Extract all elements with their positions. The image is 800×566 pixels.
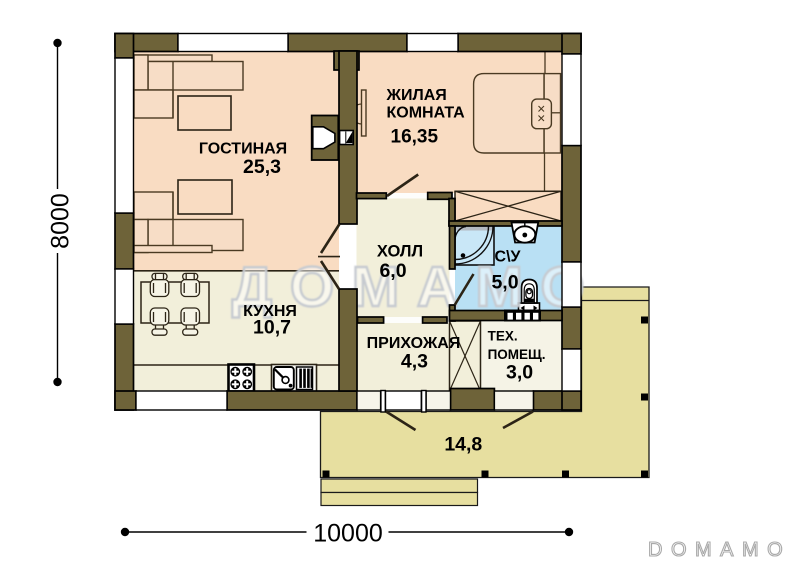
svg-text:ТЕХ.: ТЕХ. <box>488 328 518 343</box>
svg-text:ХОЛЛ: ХОЛЛ <box>377 243 423 261</box>
svg-text:С\У: С\У <box>495 249 522 266</box>
svg-text:ГОСТИНАЯ: ГОСТИНАЯ <box>199 141 287 158</box>
svg-text:14,8: 14,8 <box>444 434 482 456</box>
svg-text:25,3: 25,3 <box>243 156 281 178</box>
svg-text:DOMAMO: DOMAMO <box>648 539 791 561</box>
svg-text:6,0: 6,0 <box>379 260 406 282</box>
svg-text:16,35: 16,35 <box>391 127 439 148</box>
svg-text:10,7: 10,7 <box>253 317 291 339</box>
svg-text:4,3: 4,3 <box>401 351 428 373</box>
svg-text:10000: 10000 <box>313 520 383 548</box>
svg-text:3,0: 3,0 <box>506 362 533 384</box>
svg-text:5,0: 5,0 <box>491 272 518 294</box>
svg-text:КОМНАТА: КОМНАТА <box>387 105 466 122</box>
svg-text:ПРИХОЖАЯ: ПРИХОЖАЯ <box>367 335 461 352</box>
svg-text:ЖИЛАЯ: ЖИЛАЯ <box>386 87 447 104</box>
svg-text:8000: 8000 <box>47 193 75 249</box>
svg-text:ПОМЕЩ.: ПОМЕЩ. <box>488 347 546 362</box>
